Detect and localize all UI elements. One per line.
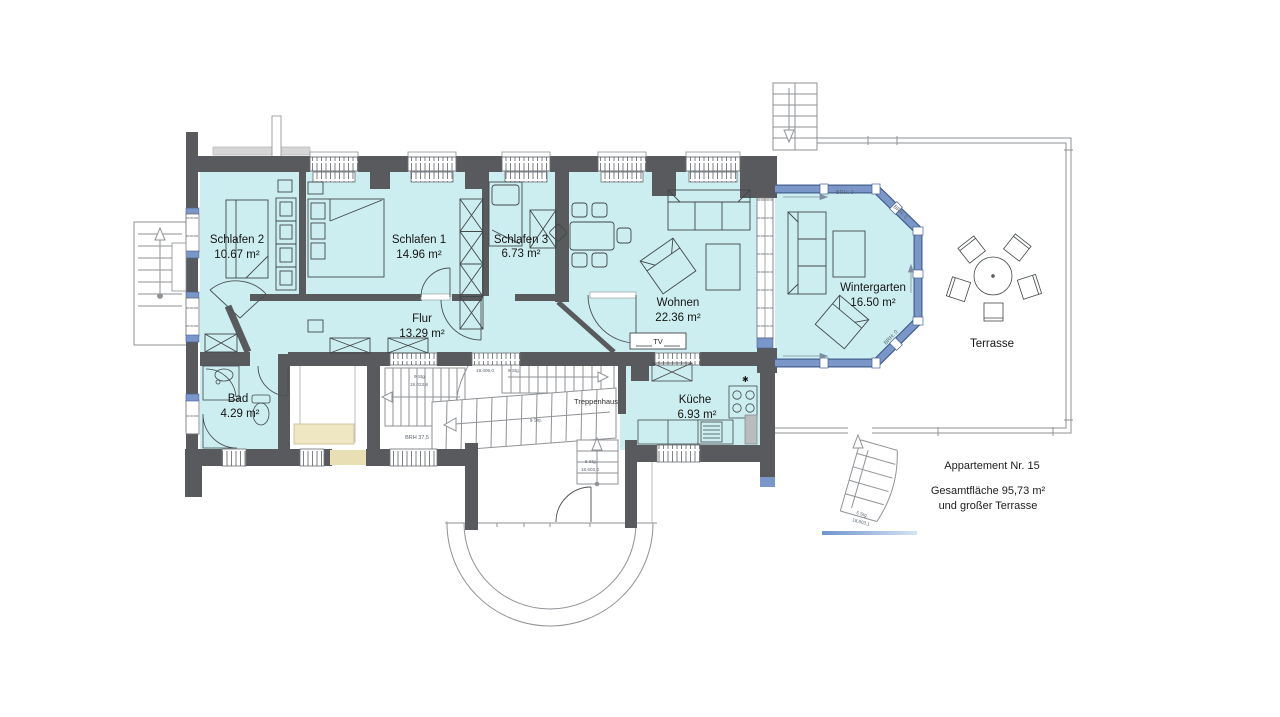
stairB-steps: 9 Stg. <box>508 368 520 373</box>
wall-pillar <box>652 172 676 196</box>
treppenhaus: 9 Stg. 19.023,8 19.406,0 9 Stg. 9 Stg. <box>290 354 618 522</box>
wall-treppenhaus-west <box>367 352 380 452</box>
wood-sill <box>294 424 354 444</box>
stairA-dim: 19.023,8 <box>410 382 428 387</box>
stairB-dim: 19.406,0 <box>476 368 494 373</box>
room-area-flur: 13.29 m² <box>399 328 445 340</box>
legend-terrace-note: und großer Terrasse <box>939 500 1038 512</box>
window-blue-cap <box>760 477 775 487</box>
wall-entrance-stub-right <box>625 440 637 528</box>
wall-bottom <box>246 449 300 466</box>
room-label-bad: Bad <box>228 393 248 405</box>
wall-flur-north <box>515 294 559 301</box>
wall-bottom <box>700 445 760 462</box>
window-wohnen-east <box>757 198 773 348</box>
window-left-wall <box>172 208 199 434</box>
wall-entrance-stub-left <box>465 443 478 530</box>
room-label-flur: Flur <box>412 313 432 325</box>
kueche-sink-symbol: ✱ <box>742 375 749 384</box>
wall-kueche-west <box>618 354 626 414</box>
wall-bottom <box>437 449 465 466</box>
wall-top <box>646 156 686 172</box>
stairC-steps: 9 Stg. <box>530 417 542 423</box>
legend-total-area: Gesamtfläche 95,73 m² <box>931 485 1046 497</box>
wall-left <box>186 132 198 214</box>
room-area-wohnen: 22.36 m² <box>655 312 701 324</box>
wall-flur-south <box>700 352 760 366</box>
wall-kueche-pillar <box>631 366 649 381</box>
room-label-schlafen2: Schlafen 2 <box>210 234 264 246</box>
room-area-schlafen1: 14.96 m² <box>396 249 442 261</box>
stairA-steps: 9 Stg. <box>414 374 426 379</box>
wall-bottom <box>185 449 222 466</box>
room-label-terrasse: Terrasse <box>970 338 1014 350</box>
wall-top <box>456 156 502 172</box>
room-area-schlafen3: 6.73 m² <box>502 248 541 260</box>
stairD-steps: 5 Stg. <box>585 459 597 464</box>
stair-top-right <box>773 83 817 150</box>
treppenhaus-label: Treppenhaus <box>574 397 618 406</box>
wall-top <box>550 156 598 172</box>
blue-accent-bar <box>822 531 917 535</box>
wood-lintel <box>330 450 366 465</box>
chimney-outline <box>272 116 281 158</box>
wall-flur-south <box>520 352 655 366</box>
stair-curved-bottom: 5 Stg. 18.603,1 <box>822 435 917 535</box>
room-label-wohnen: Wohnen <box>657 297 700 309</box>
room-label-kueche: Küche <box>679 394 712 406</box>
floor-plan-page: 5 Stg. 18.603,1 <box>0 0 1280 717</box>
room-label-wintergarten: Wintergarten <box>840 282 906 294</box>
wall-flur-south <box>200 352 250 366</box>
wall-left <box>186 336 198 400</box>
tv-board: TV <box>630 333 686 349</box>
room-area-wintergarten: 16.50 m² <box>850 297 896 309</box>
terrace-table-set <box>946 234 1041 321</box>
brh-label: BRH 37,5 <box>405 435 429 441</box>
wall-right <box>760 366 775 484</box>
wall-top <box>358 156 408 172</box>
room-label-schlafen1: Schlafen 1 <box>392 234 446 246</box>
wall-flur-south <box>437 352 472 366</box>
wall-top <box>186 156 310 172</box>
stair-flight-bottom <box>577 438 618 486</box>
wall-flur-north <box>452 294 482 301</box>
floor-plan-drawing: 5 Stg. 18.603,1 <box>0 0 1280 717</box>
legend-apartment: Appartement Nr. 15 <box>944 460 1039 472</box>
room-area-bad: 4.29 m² <box>221 408 260 420</box>
wall-s2-s1 <box>299 172 306 296</box>
wall-pillar <box>370 172 390 189</box>
tv-label: TV <box>653 337 663 346</box>
legend: Appartement Nr. 15 Gesamtfläche 95,73 m²… <box>931 460 1046 512</box>
wall-s3-wohnen <box>555 172 569 302</box>
wall-flur-north <box>250 294 422 301</box>
wall-bottom <box>366 449 390 466</box>
room-label-schlafen3: Schlafen 3 <box>494 234 548 246</box>
wall-bottom <box>637 445 657 462</box>
wintergarten-brh-top: BRH: 0 <box>836 190 854 196</box>
stairD-dim: 18.603,4 <box>581 467 599 472</box>
wall-corner-ne <box>740 156 777 198</box>
roof-edge <box>213 147 310 155</box>
room-area-kueche: 6.93 m² <box>678 409 717 421</box>
room-area-schlafen2: 10.67 m² <box>214 249 260 261</box>
